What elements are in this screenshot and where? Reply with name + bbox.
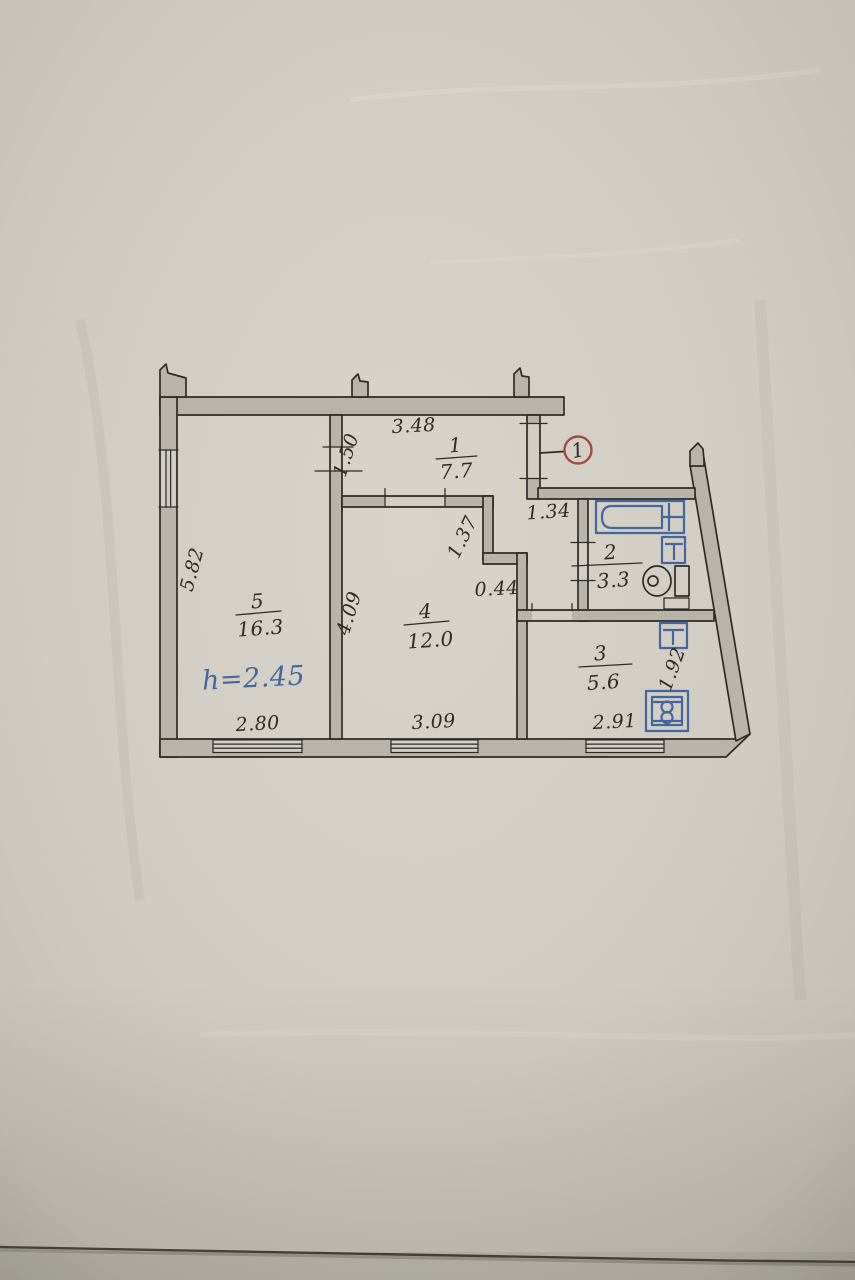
room-3-number: 3 [593, 641, 608, 666]
room-3-area: 5.6 [586, 669, 621, 695]
room-4-area: 12.0 [406, 626, 454, 653]
photographed-floor-plan-sheet: 1 1 7.7 2 3.3 3 5.6 4 12.0 5 16.3 h=2.45… [0, 0, 855, 1280]
room-5-area: 16.3 [236, 614, 284, 641]
room-1-number: 1 [448, 433, 463, 458]
ceiling-height-note: h=2.45 [201, 660, 306, 696]
dim-room3-bottom: 2.91 [591, 710, 637, 734]
room-2-number: 2 [602, 540, 618, 565]
top-wall [160, 397, 564, 415]
room-5-number: 5 [250, 589, 265, 614]
floor-plan-drawing: 1 1 7.7 2 3.3 3 5.6 4 12.0 5 16.3 h=2.45… [0, 0, 855, 1280]
dim-room4-bottom: 3.09 [411, 710, 456, 734]
window-room4 [391, 740, 478, 753]
dim-vestibule-width: 1.34 [526, 499, 572, 524]
wall-room4-right-lower [517, 553, 527, 739]
window-room3 [586, 740, 664, 753]
dim-hall-top: 3.48 [391, 414, 436, 438]
dim-wall-step-horizontal: 0.44 [474, 577, 519, 601]
window-left-wall [159, 450, 178, 507]
room-4-number: 4 [417, 599, 433, 624]
window-room5 [213, 740, 302, 753]
room-2-area: 3.3 [596, 567, 631, 593]
dim-room5-bottom: 2.80 [234, 712, 280, 736]
wall-room4-right-upper [483, 496, 493, 560]
wall-bathroom-top [538, 488, 695, 499]
room-1-area: 7.7 [439, 458, 474, 484]
stove-icon [646, 691, 688, 731]
